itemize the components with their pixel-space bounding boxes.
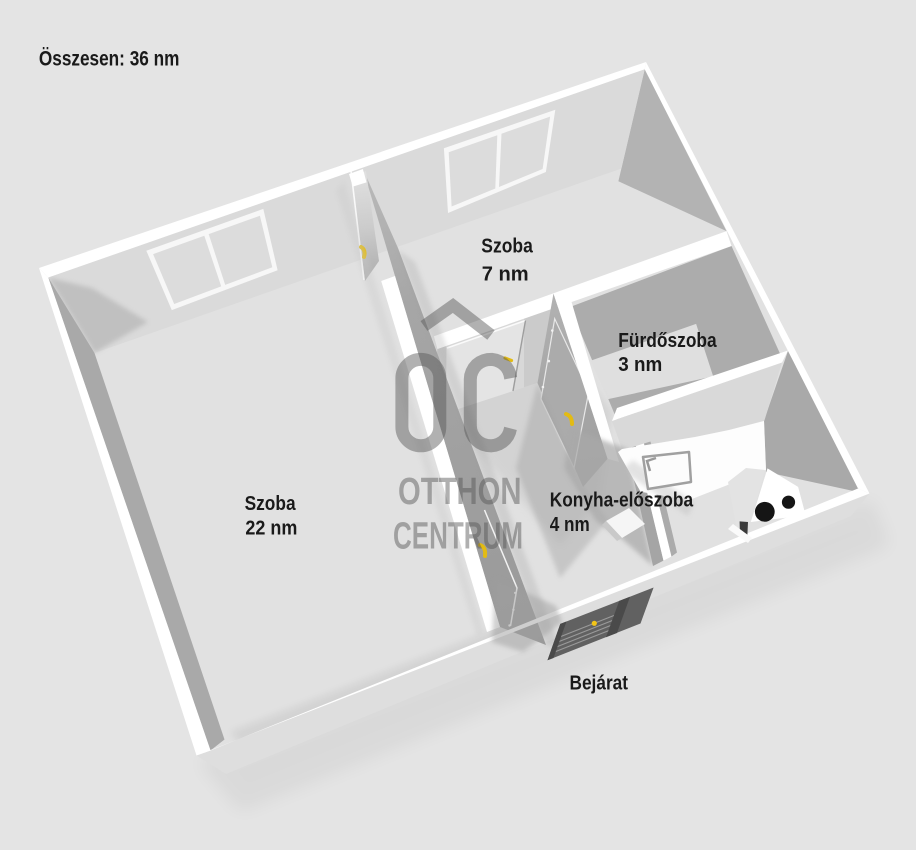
svg-text:Szoba: Szoba xyxy=(481,235,533,258)
svg-text:Fürdőszoba: Fürdőszoba xyxy=(618,329,717,352)
svg-text:Bejárat: Bejárat xyxy=(570,672,629,695)
svg-text:Szoba: Szoba xyxy=(245,492,297,515)
svg-text:OTTHON: OTTHON xyxy=(398,471,522,513)
svg-text:Összesen: 36 nm: Összesen: 36 nm xyxy=(39,45,180,70)
svg-text:4 nm: 4 nm xyxy=(550,513,590,536)
svg-text:CENTRUM: CENTRUM xyxy=(393,516,523,558)
svg-text:3 nm: 3 nm xyxy=(618,353,662,376)
svg-text:22 nm: 22 nm xyxy=(245,517,297,540)
svg-text:7 nm: 7 nm xyxy=(482,263,529,286)
svg-text:Konyha-előszoba: Konyha-előszoba xyxy=(550,488,694,511)
